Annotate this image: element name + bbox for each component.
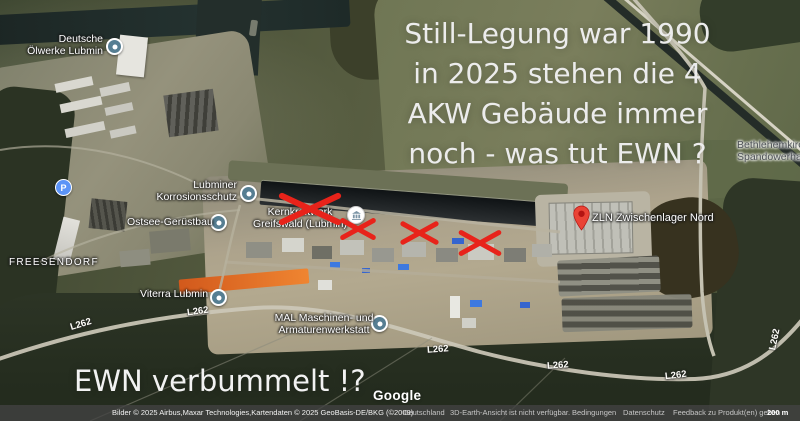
barracks-rows <box>561 294 692 333</box>
headline-line: Still-Legung war 1990 <box>385 14 730 54</box>
label-line: Deutsche <box>23 33 103 45</box>
poi-dot-icon[interactable] <box>106 38 123 55</box>
terms-link[interactable]: Bedingungen <box>572 408 616 417</box>
label-bethlehemkirche[interactable]: Bethlehemkirche Spandowerhagen <box>737 139 800 163</box>
building <box>312 246 332 259</box>
google-logo[interactable]: Google <box>373 388 421 403</box>
label-ostsee-geruestbau[interactable]: Ostsee-Gerüstbau <box>127 216 213 228</box>
road-label-l262: L262 <box>547 359 569 371</box>
building <box>462 318 476 328</box>
label-line: Lubminer <box>147 179 237 191</box>
google-maps-satellite-view[interactable]: Deutsche Ölwerke Lubmin Lubminer Korrosi… <box>0 0 800 421</box>
headline-line: in 2025 stehen die 4 <box>385 54 730 94</box>
headline-line: AKW Gebäude immer <box>385 94 730 134</box>
blue-roof <box>362 268 370 273</box>
blue-roof <box>398 264 409 270</box>
label-line: Korrosionsschutz <box>147 191 237 203</box>
poi-dot-icon[interactable] <box>210 289 227 306</box>
parking-icon[interactable]: P <box>55 179 72 196</box>
scale-label: 200 m <box>767 408 788 417</box>
map-credits: Bilder © 2025 Airbus,Maxar Technologies,… <box>112 408 413 417</box>
blue-roof <box>330 262 340 268</box>
red-x-mark <box>456 229 504 256</box>
annotation-headline: Still-Legung war 1990 in 2025 stehen die… <box>385 14 730 174</box>
attribution-bar: Bilder © 2025 Airbus,Maxar Technologies,… <box>0 405 800 421</box>
shed <box>149 228 191 253</box>
label-freesendorf: FREESENDORF <box>9 257 99 269</box>
feedback-link[interactable]: Feedback zu Produkt(en) geben <box>673 408 780 417</box>
blue-roof <box>520 302 530 308</box>
label-line: Bethlehemkirche <box>737 139 800 151</box>
headline-line: noch - was tut EWN ? <box>385 134 730 174</box>
poi-dot-icon[interactable] <box>240 185 257 202</box>
pin-glyph <box>573 205 590 231</box>
building <box>282 238 304 252</box>
3d-notice: 3D-Earth-Ansicht ist nicht verfügbar. <box>450 408 570 417</box>
label-viterra[interactable]: Viterra Lubmin <box>140 288 208 300</box>
building-tall-white <box>450 296 460 318</box>
building <box>372 248 394 262</box>
label-line: MAL Maschinen- und <box>274 312 374 324</box>
building <box>89 198 128 232</box>
red-x-mark <box>398 221 441 245</box>
red-x-mark <box>276 193 344 225</box>
blue-roof <box>470 300 482 307</box>
building <box>340 240 364 255</box>
red-pin-icon[interactable] <box>573 205 590 236</box>
annotation-bottom-note: EWN verbummelt !? <box>74 364 366 398</box>
label-line: Armaturenwerkstatt <box>274 324 374 336</box>
region-label: Deutschland <box>403 408 445 417</box>
barracks-rows <box>557 255 661 296</box>
label-zln-zwischenlager[interactable]: ZLN Zwischenlager Nord <box>592 212 714 224</box>
label-lubminer-korrosionsschutz[interactable]: Lubminer Korrosionsschutz <box>147 179 237 203</box>
label-deutsche-oelwerke[interactable]: Deutsche Ölwerke Lubmin <box>23 33 103 57</box>
red-x-mark <box>338 218 378 240</box>
shed <box>119 249 150 268</box>
building <box>246 242 272 258</box>
label-line: Spandowerhagen <box>737 151 800 163</box>
building <box>532 244 552 257</box>
label-line: Ölwerke Lubmin <box>23 45 103 57</box>
privacy-link[interactable]: Datenschutz <box>623 408 665 417</box>
zln-storage-hall <box>549 201 634 254</box>
tank-farm <box>163 89 218 138</box>
building <box>504 248 526 262</box>
building <box>318 280 332 290</box>
building <box>436 248 458 262</box>
label-mal-werkstatt[interactable]: MAL Maschinen- und Armaturenwerkstatt <box>274 312 374 336</box>
road-label-l262: L262 <box>427 343 449 355</box>
